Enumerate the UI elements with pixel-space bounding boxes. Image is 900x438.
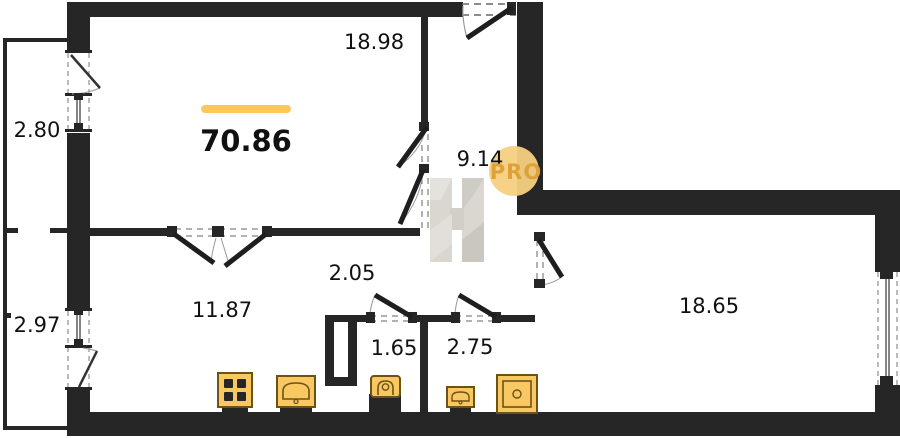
wall-left-upper bbox=[67, 2, 90, 50]
living-corridor-door bbox=[167, 226, 272, 266]
label-corridor-area: 2.05 bbox=[329, 261, 376, 285]
balcony-outer-wall bbox=[3, 38, 7, 430]
wall-corridor-top-right bbox=[265, 228, 420, 236]
label-kitchen-area: 11.87 bbox=[192, 298, 252, 322]
label-balcony-top-area: 2.80 bbox=[14, 118, 61, 142]
wall-left-lower bbox=[67, 390, 90, 412]
duct-left bbox=[325, 315, 334, 383]
label-living-room-area: 18.98 bbox=[344, 30, 404, 54]
wc-door bbox=[366, 295, 417, 323]
bathroom-door bbox=[451, 295, 501, 323]
bedroom-window bbox=[878, 270, 897, 385]
label-bathroom-area: 2.75 bbox=[447, 335, 494, 359]
pro-badge-text: PRO bbox=[490, 160, 542, 184]
floor-plan: 18.98 9.14 2.80 2.97 11.87 2.05 1.65 2.7… bbox=[0, 0, 900, 438]
wall-corridor-top-left bbox=[90, 228, 175, 236]
balcony-divider-stub-b bbox=[50, 228, 67, 233]
balcony-bottom-window-door bbox=[65, 308, 97, 390]
bedroom-door bbox=[534, 232, 562, 288]
balcony-bottom-wall bbox=[3, 426, 67, 430]
balcony-top-wall bbox=[3, 38, 67, 42]
label-wc-area: 1.65 bbox=[371, 336, 418, 360]
toilet-icon bbox=[369, 376, 401, 412]
label-total-area: 70.86 bbox=[200, 124, 292, 158]
washbasin-icon bbox=[447, 387, 474, 412]
wall-left-middle bbox=[67, 133, 90, 310]
wall-bottom bbox=[67, 412, 900, 436]
h-watermark bbox=[430, 178, 484, 262]
total-area-accent-bar bbox=[201, 105, 291, 113]
balcony-sill-stub bbox=[3, 313, 11, 318]
wall-corridor-bottom-b bbox=[413, 315, 455, 322]
living-hall-door bbox=[398, 122, 429, 228]
floor-plan-drawing bbox=[0, 0, 900, 438]
label-balcony-bottom-area: 2.97 bbox=[14, 313, 61, 337]
wall-bedroom-right-upper bbox=[875, 215, 900, 272]
label-bedroom-area: 18.65 bbox=[679, 294, 739, 318]
wall-corridor-bottom-c bbox=[497, 315, 535, 322]
wall-bedroom-top bbox=[535, 190, 900, 215]
wall-wc-bath-divider bbox=[420, 322, 428, 412]
entrance-door bbox=[462, 2, 516, 38]
kitchen-sink-icon bbox=[277, 376, 315, 413]
duct-right bbox=[348, 315, 357, 386]
wall-top bbox=[67, 2, 463, 17]
balcony-top-window-door bbox=[65, 50, 100, 132]
shower-icon bbox=[497, 375, 537, 413]
stove-icon bbox=[218, 373, 252, 413]
balcony-divider-stub-a bbox=[3, 228, 18, 233]
wall-living-hall bbox=[421, 17, 428, 123]
